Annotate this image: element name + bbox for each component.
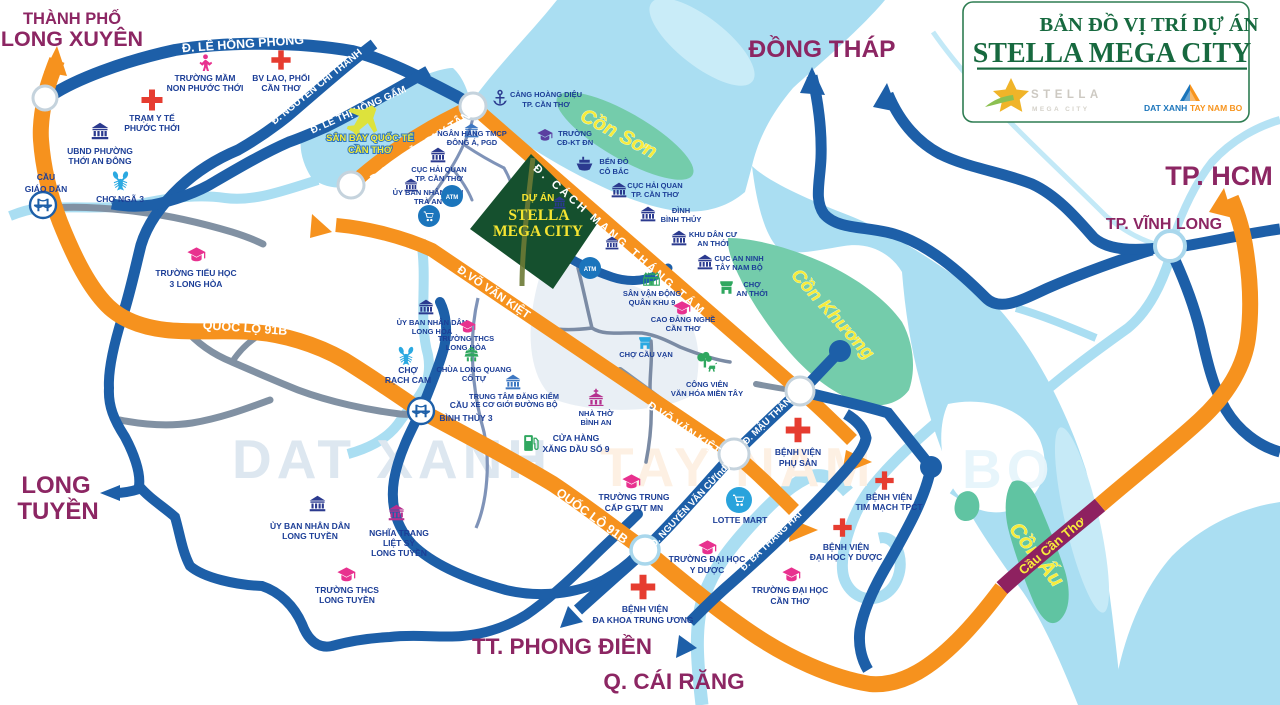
- svg-text:CỤC AN NINH: CỤC AN NINH: [714, 254, 763, 263]
- svg-text:TRƯỜNG MẦM: TRƯỜNG MẦM: [174, 72, 235, 83]
- svg-text:MEGA CITY: MEGA CITY: [1032, 106, 1089, 113]
- svg-text:ĐA KHOA TRUNG ƯƠNG: ĐA KHOA TRUNG ƯƠNG: [592, 615, 693, 625]
- svg-text:CỬA HÀNG: CỬA HÀNG: [553, 432, 600, 443]
- svg-text:THÀNH PHỐ: THÀNH PHỐ: [23, 8, 121, 28]
- svg-text:BV LAO, PHỔI: BV LAO, PHỔI: [252, 72, 310, 83]
- svg-text:LONG TUYỀN: LONG TUYỀN: [319, 595, 375, 605]
- svg-text:TÂY NAM BỘ: TÂY NAM BỘ: [715, 263, 763, 272]
- svg-text:CÔ BẮC: CÔ BẮC: [599, 167, 629, 176]
- svg-text:CẤP GTVT MN: CẤP GTVT MN: [605, 503, 663, 513]
- svg-text:CÔNG VIÊN: CÔNG VIÊN: [686, 380, 728, 389]
- svg-text:VĂN HÓA MIỀN TÂY: VĂN HÓA MIỀN TÂY: [671, 388, 743, 398]
- svg-text:BÌNH AN: BÌNH AN: [581, 418, 612, 427]
- svg-text:3 LONG HÒA: 3 LONG HÒA: [170, 278, 223, 289]
- svg-text:CẦN THƠ: CẦN THƠ: [348, 145, 393, 156]
- svg-text:CẦN THƠ: CẦN THƠ: [770, 596, 810, 606]
- svg-text:CHỢ: CHỢ: [743, 280, 761, 289]
- svg-text:CẦU: CẦU: [37, 172, 55, 182]
- svg-text:TRẠM Y TẾ: TRẠM Y TẾ: [129, 113, 175, 123]
- svg-text:TRƯỜNG TIỂU HỌC: TRƯỜNG TIỂU HỌC: [155, 267, 236, 278]
- svg-text:TRƯỜNG TRUNG: TRƯỜNG TRUNG: [599, 491, 670, 502]
- svg-text:ATM: ATM: [584, 267, 597, 273]
- svg-text:SÂN BAY QUỐC TẾ: SÂN BAY QUỐC TẾ: [326, 132, 414, 144]
- svg-text:BẢN ĐỒ VỊ TRÍ DỰ ÁN: BẢN ĐỒ VỊ TRÍ DỰ ÁN: [1040, 12, 1259, 36]
- svg-text:TUYỀN: TUYỀN: [17, 497, 98, 525]
- svg-text:TP. VĨNH LONG: TP. VĨNH LONG: [1106, 213, 1222, 233]
- svg-text:TRƯỜNG ĐẠI HỌC: TRƯỜNG ĐẠI HỌC: [752, 584, 829, 595]
- svg-text:ĐẠI HỌC Y DƯỢC: ĐẠI HỌC Y DƯỢC: [810, 552, 883, 562]
- svg-text:BẾN ĐÒ: BẾN ĐÒ: [599, 156, 628, 166]
- svg-text:TAY NAM BO: TAY NAM BO: [1190, 103, 1243, 113]
- svg-text:MEGA CITY: MEGA CITY: [493, 223, 583, 240]
- svg-text:BỆNH VIỆN: BỆNH VIỆN: [823, 541, 869, 552]
- svg-text:TRƯỜNG THCS: TRƯỜNG THCS: [315, 584, 379, 595]
- svg-text:NON PHƯỚC THỚI: NON PHƯỚC THỚI: [167, 82, 244, 93]
- svg-text:DAT XANH: DAT XANH: [1144, 103, 1187, 113]
- svg-text:ĐÔNG Á, PGD: ĐÔNG Á, PGD: [447, 138, 498, 147]
- svg-text:DỰ ÁN: DỰ ÁN: [522, 191, 555, 204]
- svg-text:ỦY BAN NHÂN DÂN: ỦY BAN NHÂN DÂN: [397, 318, 468, 327]
- svg-text:CẦN THƠ: CẦN THƠ: [666, 323, 701, 333]
- svg-text:CẦU: CẦU: [450, 400, 468, 410]
- svg-text:ATM: ATM: [446, 195, 459, 201]
- svg-text:QUÂN KHU 9: QUÂN KHU 9: [629, 298, 676, 307]
- svg-text:THỚI AN ĐÔNG: THỚI AN ĐÔNG: [68, 155, 132, 166]
- svg-text:CHỢ: CHỢ: [398, 365, 418, 375]
- svg-text:LIỆT SỸ: LIỆT SỸ: [383, 537, 415, 548]
- svg-text:CHÙA LONG QUANG: CHÙA LONG QUANG: [436, 365, 511, 374]
- svg-text:CẢNG HOÀNG DIỆU: CẢNG HOÀNG DIỆU: [510, 90, 582, 99]
- svg-text:TP. CẦN THƠ: TP. CẦN THƠ: [631, 189, 679, 199]
- svg-text:CỔ TỰ: CỔ TỰ: [462, 374, 487, 383]
- svg-text:AN THỚI: AN THỚI: [736, 289, 767, 298]
- svg-text:LONG XUYÊN: LONG XUYÊN: [1, 26, 143, 51]
- svg-text:CỤC HẢI QUAN: CỤC HẢI QUAN: [411, 165, 466, 174]
- svg-text:NHÀ THỜ: NHÀ THỜ: [579, 409, 614, 418]
- svg-text:CHỢ NGÃ 3: CHỢ NGÃ 3: [96, 194, 144, 204]
- svg-text:LONG: LONG: [21, 472, 90, 499]
- svg-text:BỆNH VIỆN: BỆNH VIỆN: [622, 603, 668, 614]
- svg-text:TIM MẠCH TPCT: TIM MẠCH TPCT: [855, 502, 923, 512]
- svg-text:NGHĨA TRANG: NGHĨA TRANG: [369, 528, 429, 538]
- svg-text:TRƯỜNG ĐẠI HỌC: TRƯỜNG ĐẠI HỌC: [669, 553, 746, 564]
- svg-text:UBND PHƯỜNG: UBND PHƯỜNG: [67, 145, 133, 156]
- svg-text:XE CƠ GIỚI ĐƯỜNG BỘ: XE CƠ GIỚI ĐƯỜNG BỘ: [470, 400, 557, 409]
- svg-text:Q. CÁI RĂNG: Q. CÁI RĂNG: [603, 669, 744, 694]
- svg-text:GIÁO DẨN: GIÁO DẨN: [25, 183, 68, 194]
- svg-text:SÂN VẬN ĐỘNG: SÂN VẬN ĐỘNG: [623, 289, 682, 298]
- svg-text:LONG TUYỀN: LONG TUYỀN: [371, 548, 427, 558]
- svg-text:BÌNH THỦY: BÌNH THỦY: [661, 215, 702, 224]
- svg-text:BỆNH VIỆN: BỆNH VIỆN: [775, 446, 821, 457]
- svg-text:PHỤ SẢN: PHỤ SẢN: [779, 457, 817, 468]
- svg-text:ĐÌNH: ĐÌNH: [672, 206, 690, 215]
- svg-text:CẦN THƠ: CẦN THƠ: [261, 83, 301, 93]
- svg-text:TP. HCM: TP. HCM: [1165, 161, 1273, 191]
- svg-text:BÌNH THỦY 3: BÌNH THỦY 3: [439, 412, 492, 423]
- svg-text:BỆNH VIỆN: BỆNH VIỆN: [866, 491, 912, 502]
- svg-text:CHỢ CẦU VẠN: CHỢ CẦU VẠN: [619, 349, 672, 359]
- svg-text:LOTTE MART: LOTTE MART: [713, 515, 769, 525]
- svg-text:CĐ-KT ĐN: CĐ-KT ĐN: [557, 138, 593, 147]
- svg-text:TRƯỜNG THCS: TRƯỜNG THCS: [438, 334, 494, 343]
- svg-text:RẠCH CAM: RẠCH CAM: [385, 375, 431, 385]
- svg-text:TRƯỜNG: TRƯỜNG: [558, 129, 592, 138]
- svg-text:KHU DÂN CƯ: KHU DÂN CƯ: [689, 230, 738, 239]
- svg-text:Y DƯỢC: Y DƯỢC: [690, 565, 724, 575]
- svg-text:STELLA MEGA CITY: STELLA MEGA CITY: [973, 38, 1252, 69]
- svg-text:ỦY BAN NHÂN DÂN: ỦY BAN NHÂN DÂN: [270, 520, 350, 531]
- svg-text:CAO ĐẲNG NGHỀ: CAO ĐẲNG NGHỀ: [651, 314, 716, 324]
- svg-text:TRÀ AN: TRÀ AN: [414, 197, 442, 206]
- svg-text:NGÂN HÀNG TMCP: NGÂN HÀNG TMCP: [437, 129, 507, 138]
- svg-text:XĂNG DẦU SỐ 9: XĂNG DẦU SỐ 9: [542, 443, 609, 454]
- svg-text:TT. PHONG ĐIỀN: TT. PHONG ĐIỀN: [472, 634, 652, 659]
- svg-text:LONG TUYỀN: LONG TUYỀN: [282, 531, 338, 541]
- svg-text:CỤC HẢI QUAN: CỤC HẢI QUAN: [627, 181, 682, 190]
- svg-text:PHƯỚC THỚI: PHƯỚC THỚI: [124, 122, 180, 133]
- svg-text:STELLA: STELLA: [1031, 89, 1103, 101]
- svg-text:TP. CẦN THƠ: TP. CẦN THƠ: [415, 173, 463, 183]
- svg-text:ĐỒNG THÁP: ĐỒNG THÁP: [749, 35, 896, 63]
- svg-text:TP. CẦN THƠ: TP. CẦN THƠ: [522, 99, 570, 109]
- svg-text:STELLA: STELLA: [508, 207, 570, 224]
- svg-text:AN THỚI: AN THỚI: [697, 239, 728, 248]
